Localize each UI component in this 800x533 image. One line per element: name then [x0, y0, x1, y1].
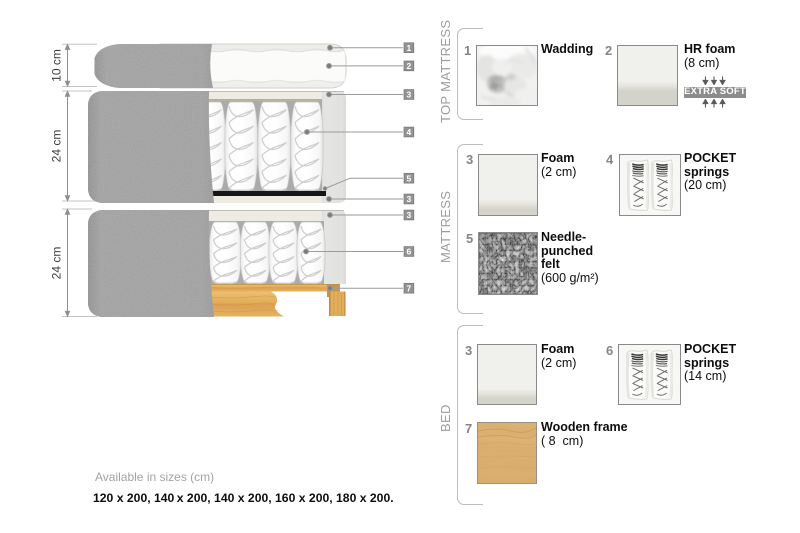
svg-text:3: 3 [407, 194, 412, 204]
svg-text:7: 7 [407, 283, 412, 293]
svg-text:5: 5 [407, 173, 412, 183]
svg-text:24 cm: 24 cm [50, 130, 64, 163]
svg-text:24 cm: 24 cm [50, 247, 64, 280]
svg-text:2: 2 [407, 61, 412, 71]
svg-text:4: 4 [407, 127, 412, 137]
svg-text:6: 6 [407, 247, 412, 257]
svg-text:10 cm: 10 cm [50, 49, 64, 82]
svg-text:1: 1 [407, 43, 412, 53]
svg-text:3: 3 [407, 210, 412, 220]
svg-text:3: 3 [407, 90, 412, 100]
